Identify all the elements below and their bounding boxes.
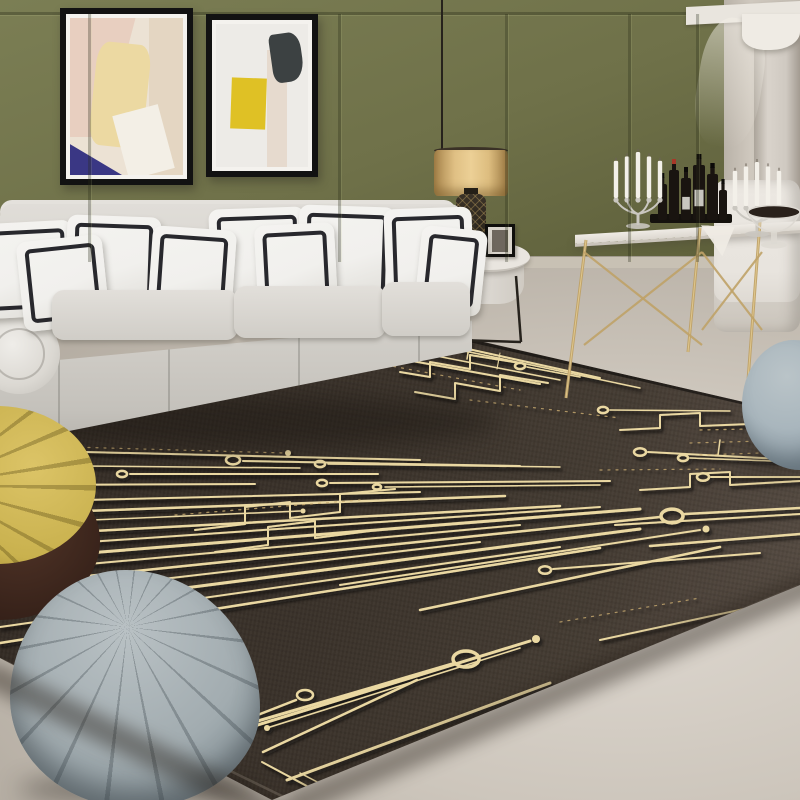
bottle-cap [684,167,688,172]
white-candle [744,166,748,206]
bottle-cap [672,159,676,164]
table-photo-frame [485,224,515,257]
wall-panel-stile [696,14,699,262]
white-candle [636,152,640,198]
white-candle [766,166,770,206]
white-sofa [0,198,476,460]
bottle-neck [684,171,688,179]
bowl-foot [761,242,787,249]
bowl-contents [748,206,800,219]
seat-cushion [234,286,386,338]
bottle-neck [721,183,724,191]
skirt-pleat [418,318,420,450]
white-candle [755,162,759,206]
wall-panel-stile [338,14,341,262]
liquor-bottle [669,170,679,220]
white-candle [614,161,618,198]
white-candle [647,156,651,198]
bottle-neck [672,163,676,171]
wall-panel-stile [628,14,631,262]
candle-cup [613,197,618,202]
candle-cup [732,205,737,210]
candle-cup [743,205,748,210]
white-candle [658,161,662,198]
side-table-leg [516,276,521,342]
white-candle [733,171,737,206]
candle-cup [646,197,651,202]
wall-panel-stile [88,14,91,262]
bottle-cap [721,179,724,184]
console-leg-highlight [566,240,586,398]
bottle-cap [710,163,714,168]
seat-cushion [382,282,470,336]
candle-cup [657,197,662,202]
bottle-label [682,197,690,210]
living-room-scene [0,0,800,800]
metal-group [442,0,762,398]
bottle-neck [710,167,714,175]
seat-cushion [52,290,238,340]
liquor-bottle [719,190,727,220]
candelabra-base [745,231,769,237]
white-candle [777,171,781,206]
wall-panel-stile [505,14,508,262]
liquor-bottle [707,174,718,220]
candle-cup [635,197,640,202]
